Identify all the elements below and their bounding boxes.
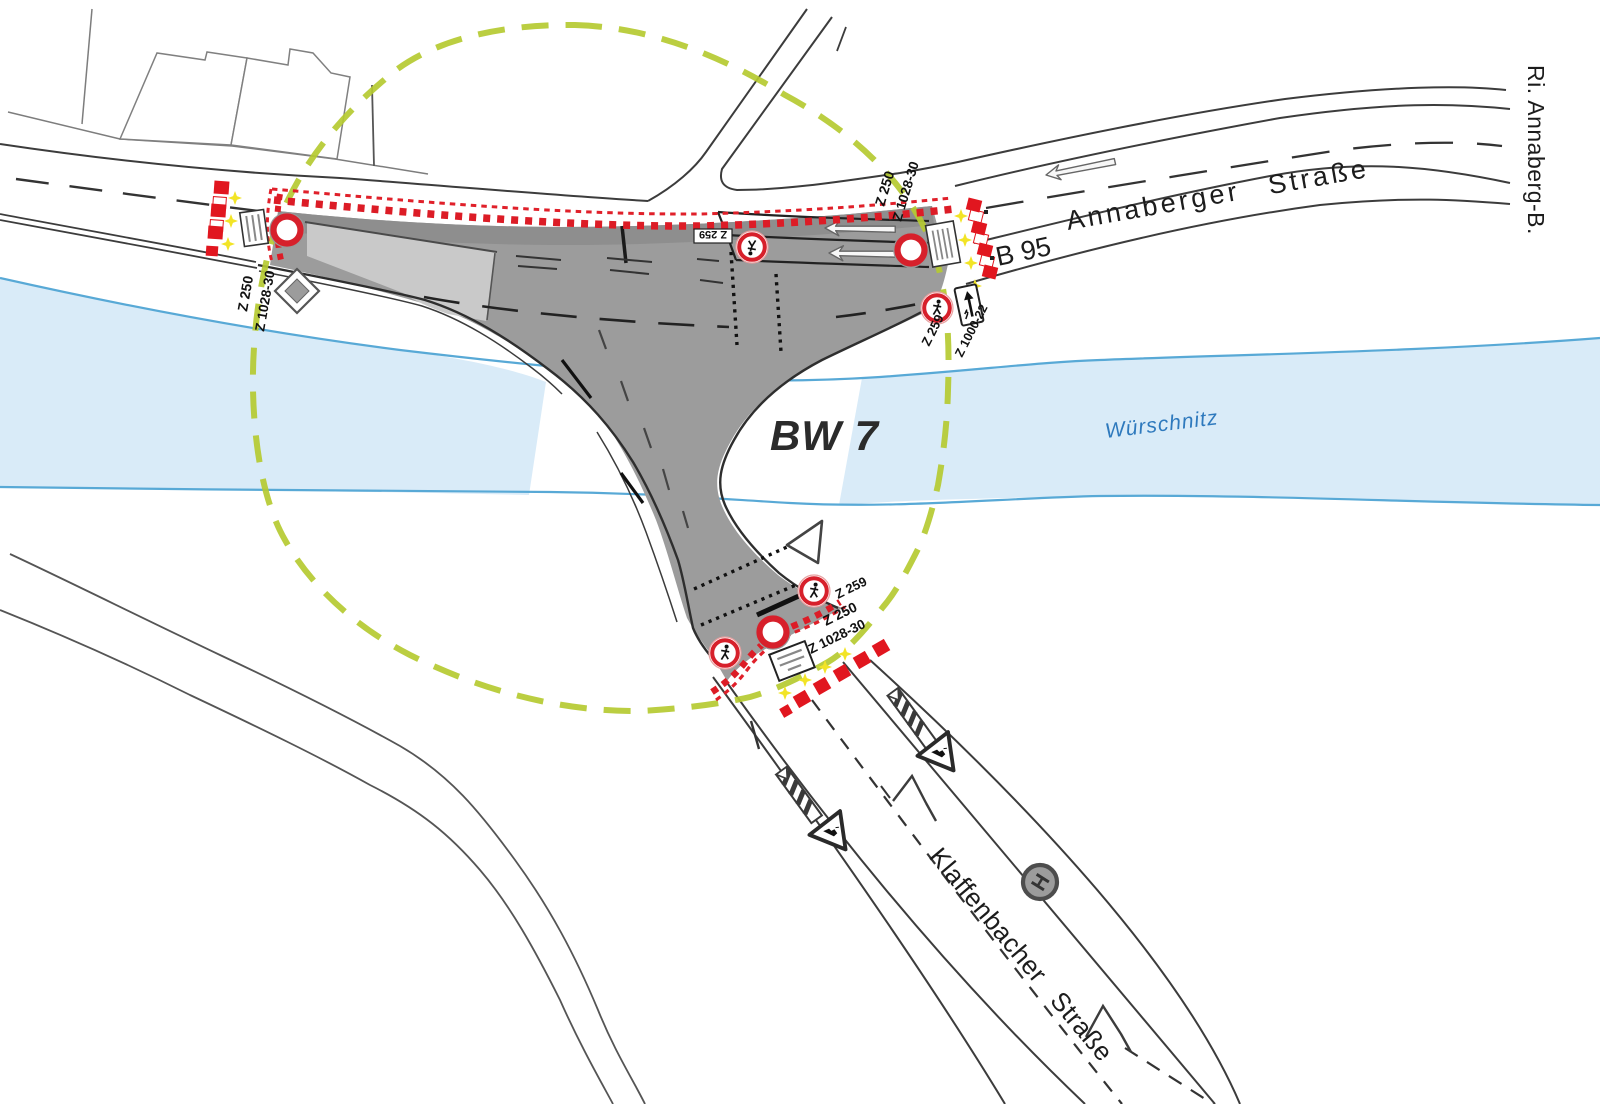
- svg-text:BW 7: BW 7: [770, 412, 880, 459]
- svg-text:Z 259: Z 259: [699, 228, 727, 240]
- svg-text:Ri. Annaberg-B.: Ri. Annaberg-B.: [1523, 65, 1549, 235]
